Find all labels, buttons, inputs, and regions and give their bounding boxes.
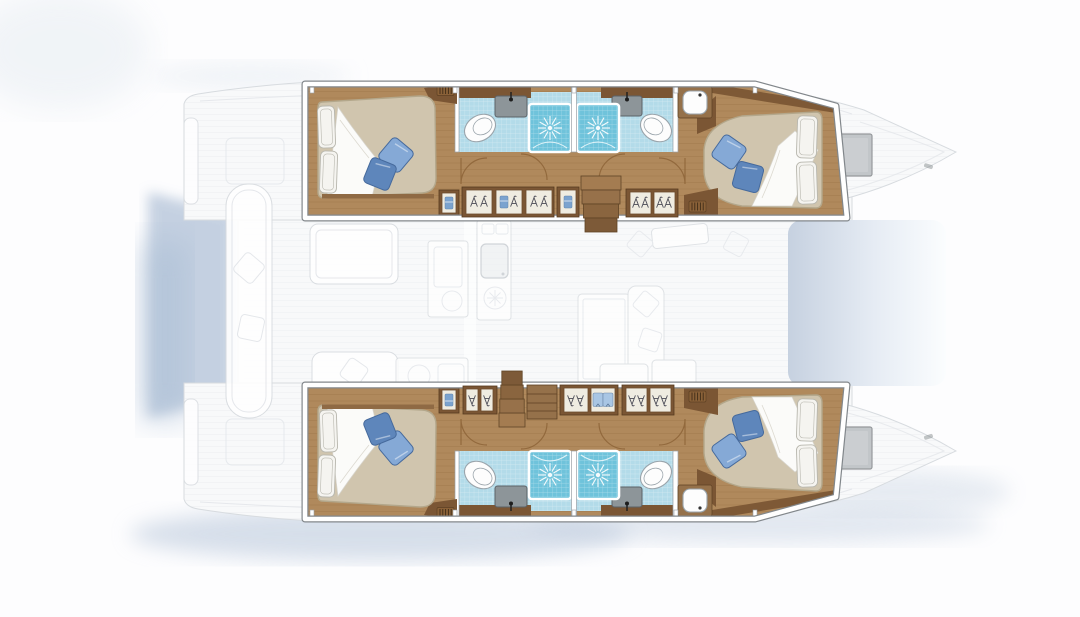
cockpit-table — [310, 224, 398, 284]
companionway-lower — [499, 371, 525, 427]
catamaran-layout-diagram — [0, 0, 1080, 617]
foredeck-panel — [788, 220, 946, 386]
shelf-unit — [527, 385, 557, 419]
wardrobe-shirts — [560, 385, 618, 415]
wardrobe-2-door — [463, 386, 497, 414]
wardrobe-2-door — [626, 189, 678, 217]
cockpit-bench — [226, 184, 272, 418]
floorplan-svg — [0, 0, 1080, 617]
wardrobe-3-door — [462, 187, 554, 217]
hanging-locker — [557, 187, 579, 217]
upper-hull-interior — [305, 83, 850, 232]
wardrobe-2-door — [622, 385, 674, 415]
companionway-upper — [581, 176, 621, 232]
lower-hull-interior — [305, 371, 850, 520]
